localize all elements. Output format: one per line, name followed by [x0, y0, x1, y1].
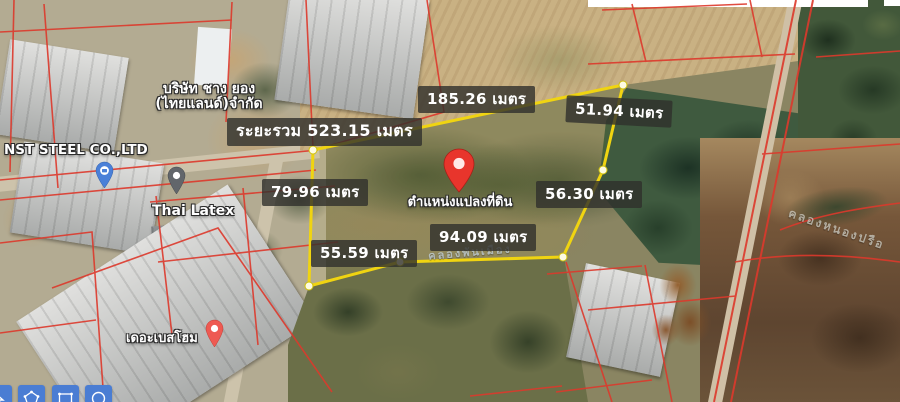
- satellite-map[interactable]: ระยะรวม 523.15 เมตร 185.26 เมตร 51.94 เม…: [0, 0, 900, 402]
- measurement-label-bottom-left: 55.59 เมตร: [311, 240, 417, 267]
- the-best-home-label: เดอะเบสโฮม: [126, 327, 198, 348]
- poi-marker-icon[interactable]: [168, 167, 185, 194]
- nst-steel-label: NST STEEL CO.,LTD: [4, 142, 148, 158]
- measurement-label-right: 56.30 เมตร: [536, 181, 642, 208]
- pin-caption-label: ตำแหน่งแปลงที่ดิน: [402, 191, 518, 212]
- total-distance-label: ระยะรวม 523.15 เมตร: [227, 118, 422, 146]
- measurement-label-top: 185.26 เมตร: [418, 86, 535, 113]
- business-marker-icon[interactable]: [96, 162, 113, 188]
- company-name-line2: (ไทยแลนด์)จำกัด: [150, 97, 268, 112]
- company-name-label: บริษัท ชาง ยอง (ไทยแลนด์)จำกัด: [150, 82, 268, 112]
- company-name-line1: บริษัท ชาง ยอง: [150, 82, 268, 97]
- select-tool-button[interactable]: [0, 385, 12, 402]
- measurement-label-left: 79.96 เมตร: [262, 179, 368, 206]
- measurement-label-bottom-right: 94.09 เมตร: [430, 224, 536, 251]
- thai-latex-label: Thai Latex: [152, 203, 234, 219]
- polygon-tool-button[interactable]: [18, 385, 45, 402]
- measurement-label-upper-right: 51.94 เมตร: [565, 95, 673, 128]
- poi-marker-icon[interactable]: [206, 320, 223, 347]
- rectangle-tool-button[interactable]: [52, 385, 79, 402]
- circle-tool-button[interactable]: [85, 385, 112, 402]
